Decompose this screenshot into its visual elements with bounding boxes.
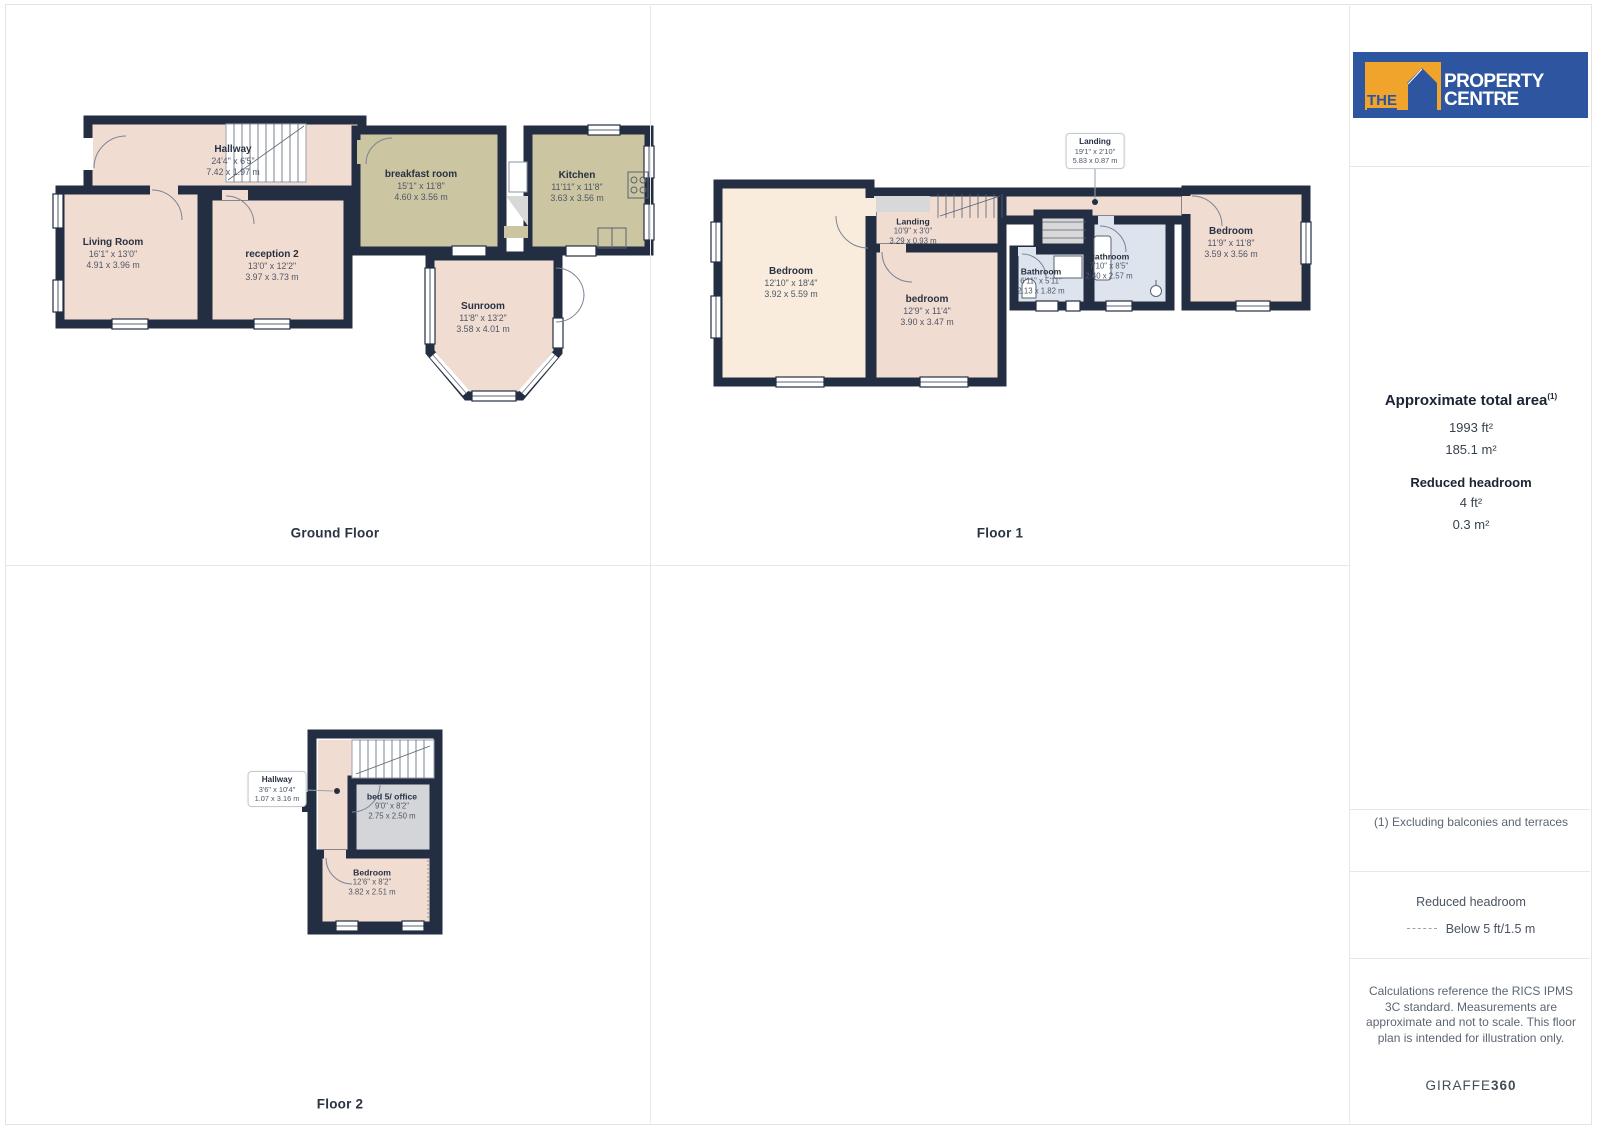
stair-wedge (506, 196, 528, 226)
property-centre-logo: THE PROPERTY CENTRE (1353, 52, 1588, 118)
callout-dot (1092, 199, 1098, 205)
sidebar-divider-2 (1350, 809, 1590, 810)
legend-value: Below 5 ft/1.5 m (1446, 922, 1536, 936)
reduced-headroom-m: 0.3 m² (1350, 514, 1592, 536)
ground-floor-title: Ground Floor (291, 526, 380, 541)
room-label-bedroom-right: Bedroom 11'9" x 11'8" 3.59 x 3.56 m (1204, 226, 1257, 260)
landing-callout: Landing 19'1" x 2'10" 5.83 x 0.87 m (1066, 133, 1125, 169)
total-area-ft: 1993 ft² (1350, 417, 1592, 439)
reduced-headroom-title: Reduced headroom (1350, 475, 1592, 490)
panel-divider-horizontal (5, 565, 1349, 566)
disclaimer-text: Calculations reference the RICS IPMS 3C … (1361, 984, 1581, 1046)
hallway-callout: Hallway 3'6" x 10'4" 1.07 x 3.16 m (248, 771, 307, 807)
room-label-living-room: Living Room 16'1" x 13'0" 4.91 x 3.96 m (83, 237, 144, 271)
room-label-bed5-office: bed 5/ office 9'0" x 8'2" 2.75 x 2.50 m (367, 792, 417, 821)
room-hallway2 (318, 740, 352, 854)
room-label-bedroom-left: Bedroom 12'10" x 18'4" 3.92 x 5.59 m (764, 266, 817, 300)
legend-title: Reduced headroom (1350, 895, 1592, 909)
stairs (352, 740, 434, 778)
footnote-marker: (1) (1547, 392, 1557, 401)
total-area-title: Approximate total area(1) (1350, 392, 1592, 409)
total-area-block: Approximate total area(1) 1993 ft² 185.1… (1350, 392, 1592, 536)
room-label-bedroom-mid: bedroom 12'9" x 11'4" 3.90 x 3.47 m (900, 294, 953, 328)
reduced-headroom-ft: 4 ft² (1350, 492, 1592, 514)
room-label-breakfast-room: breakfast room 15'1" x 11'8" 4.60 x 3.56… (385, 169, 457, 203)
sidebar-divider-1 (1350, 166, 1590, 167)
floor2-plan (302, 734, 438, 931)
sidebar-divider-4 (1350, 958, 1590, 959)
toilet-icon (1151, 286, 1162, 297)
floorplan-page: Ground Floor Floor 1 Floor 2 Hallway 24'… (0, 0, 1600, 1132)
sidebar-divider (1349, 4, 1350, 1123)
floor2-title: Floor 2 (317, 1097, 363, 1112)
room-label-kitchen: Kitchen 11'11" x 11'8" 3.63 x 3.56 m (550, 170, 603, 204)
cupboard (509, 162, 527, 192)
panel-divider-vertical-1 (650, 4, 651, 1123)
room-label-landing: Landing 10'9" x 3'0" 3.29 x 0.93 m (889, 217, 936, 246)
room-label-sunroom: Sunroom 11'8" x 13'2" 3.58 x 4.01 m (456, 301, 509, 335)
callout-dot (334, 788, 340, 794)
legend-block: Reduced headroom Below 5 ft/1.5 m (1350, 895, 1592, 938)
room-label-hallway: Hallway 24'4" x 6'5" 7.42 x 1.97 m (206, 144, 259, 178)
giraffe360-logo: GIRAFFE360 (1350, 1078, 1592, 1093)
logo-name-text: PROPERTY CENTRE (1444, 73, 1588, 109)
stairwell (1038, 214, 1088, 248)
room-label-reception-2: reception 2 13'0" x 12'2" 3.97 x 3.73 m (245, 249, 298, 283)
logo-the-text: THE (1367, 94, 1397, 110)
sidebar-divider-3 (1350, 871, 1590, 872)
area-footnote: (1) Excluding balconies and terraces (1350, 815, 1592, 831)
room-label-bathroom-large: Bathroom 7'10" x 8'5" 2.40 x 2.57 m (1085, 252, 1132, 281)
floor1-title: Floor 1 (977, 526, 1023, 541)
room-label-bathroom-small: Bathroom 6'11" x 5'11" 2.13 x 1.82 m (1017, 267, 1064, 296)
dashed-line-icon (1407, 928, 1437, 929)
room-label-bedroom2: Bedroom 12'6" x 8'2" 3.82 x 2.51 m (348, 868, 395, 897)
legend-row: Below 5 ft/1.5 m (1350, 920, 1592, 938)
total-area-m: 185.1 m² (1350, 439, 1592, 461)
